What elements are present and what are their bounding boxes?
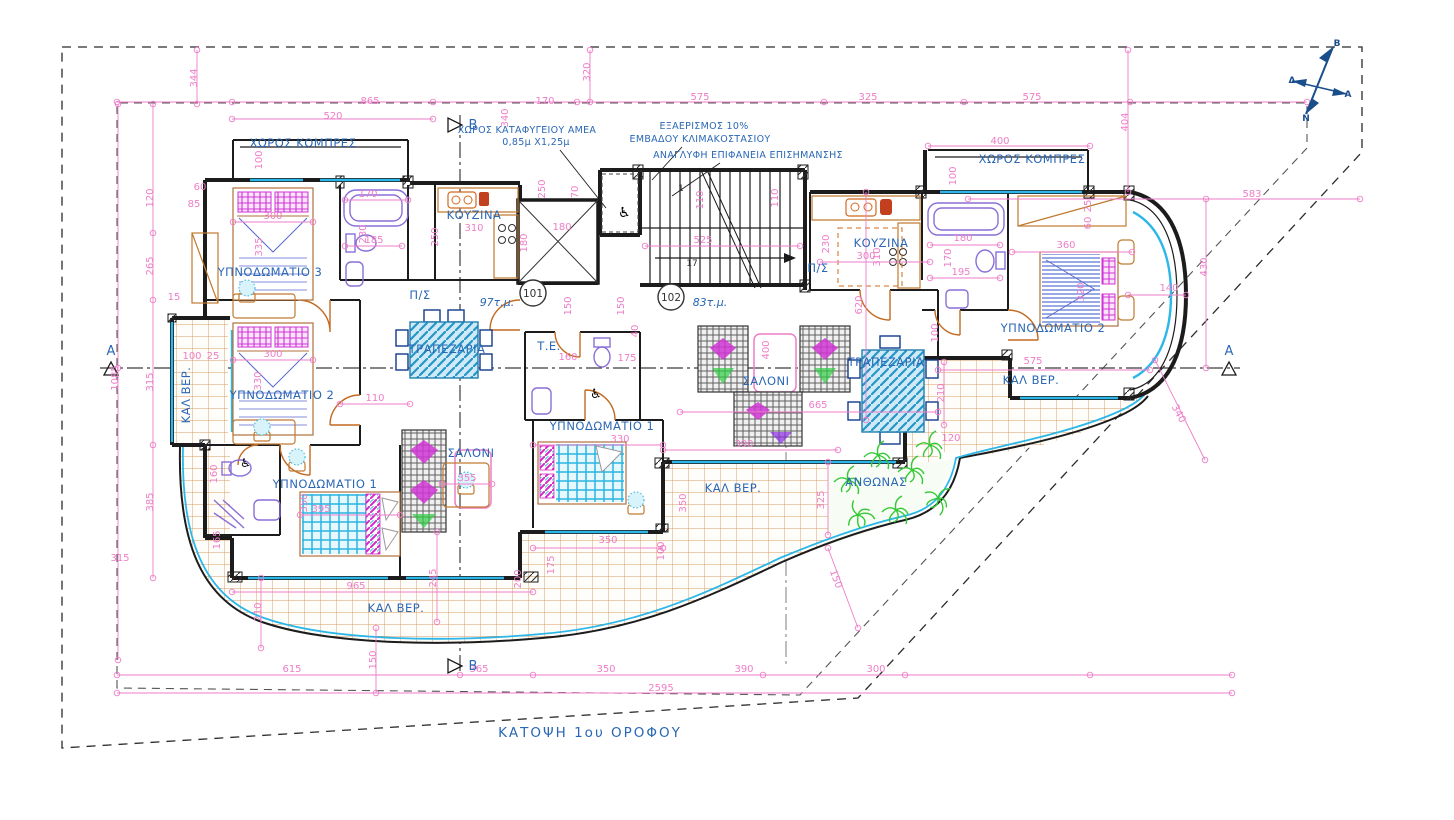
annotation-label: ΑΝΑΓΛΥΦΗ ΕΠΙΦΑΝΕΙΑ ΕΠΙΣΗΜΑΝΣΗΣ xyxy=(653,150,843,161)
dimension-label: 300 xyxy=(866,664,885,675)
dimension-label: 350 xyxy=(598,535,617,546)
bed-bedroom1-102 xyxy=(538,442,626,504)
dimension-label: 185 xyxy=(364,235,383,246)
dimension-label: 180 xyxy=(519,233,530,252)
dimension-label: 15 xyxy=(168,292,181,303)
dimension-label: 100 xyxy=(254,150,265,169)
dimension-label: 165 xyxy=(212,530,223,549)
room-label: ΚΑΛ ΒΕΡ. xyxy=(705,481,762,495)
room-label: ΣΑΛΟΝΙ xyxy=(742,374,789,388)
compass-letter: Δ xyxy=(1289,76,1296,86)
dimension-label: 575 xyxy=(1023,356,1042,367)
compass-letter: N xyxy=(1302,114,1310,124)
apartment-101-number: 101 xyxy=(523,288,543,300)
section-marker-letter: B xyxy=(469,659,478,674)
armchair-102-a xyxy=(698,326,748,392)
dimension-label: 230 xyxy=(821,234,832,253)
dimension-label: 385 xyxy=(145,492,156,511)
dimension-label: 620 xyxy=(854,295,865,314)
dimension-label: 300 xyxy=(263,211,282,222)
dimension-label: 400 xyxy=(990,136,1009,147)
dimension-label: 615 xyxy=(282,664,301,675)
dimension-label: 180 xyxy=(953,233,972,244)
dimension-label: 350 xyxy=(596,664,615,675)
dimension-label: 40 xyxy=(630,325,641,338)
dimension-label: 210 xyxy=(936,383,947,402)
dimension-label: 575 xyxy=(690,92,709,103)
compass-letter: B xyxy=(1334,39,1341,49)
room-label: ΧΩΡΟΣ ΚΟΜΠΡΕΣ xyxy=(250,136,357,150)
dimension-label: 100 xyxy=(948,166,959,185)
dimension-label: 665 xyxy=(808,400,827,411)
dimension-label: 865 xyxy=(360,96,379,107)
dimension-label: 320 xyxy=(582,62,593,81)
stair-number: 17 xyxy=(686,259,697,269)
dimension-label: 160 xyxy=(558,352,577,363)
annotation-label: 0,85μ Χ1,25μ xyxy=(502,137,570,148)
dimension-label: 245 xyxy=(428,568,439,587)
apartment-101-area: 97τ.μ. xyxy=(480,296,515,309)
section-marker-letter: B xyxy=(469,118,478,133)
room-label: Τ.Ε. xyxy=(536,339,561,353)
dimension-label: 390 xyxy=(734,664,753,675)
dimension-label: 150 xyxy=(827,568,844,590)
room-label: ΧΩΡΟΣ ΚΟΜΠΡΕΣ xyxy=(979,152,1086,166)
dimension-label: 325 xyxy=(816,490,827,509)
annotation-label: ΕΜΒΑΔΟΥ ΚΛΙΜΑΚΟΣΤΑΣΙΟΥ xyxy=(630,134,771,145)
dimension-label: 525 xyxy=(693,235,712,246)
dimension-label: 140 xyxy=(1159,283,1178,294)
room-label: ΚΑΛ ΒΕΡ. xyxy=(179,367,193,424)
dimension-label: 160 xyxy=(209,464,220,483)
dimension-label: 60 xyxy=(1083,217,1094,230)
dimension-label: 150 xyxy=(563,296,574,315)
dimension-label: 520 xyxy=(323,111,342,122)
room-label: ΚΟΥΖΙΝΑ xyxy=(447,208,502,222)
annotation-label: ΕΞΑΕΡΙΣΜΟΣ 10% xyxy=(659,121,748,132)
dimension-label: 320 xyxy=(1076,282,1087,301)
room-label: ΚΑΛ ΒΕΡ. xyxy=(368,601,425,615)
dimension-label: 2595 xyxy=(648,683,673,694)
north-compass-icon xyxy=(1292,47,1347,114)
dining-table-102 xyxy=(848,336,938,444)
dimension-label: 100 xyxy=(930,323,941,342)
room-label: ΥΠΝΟΔΩΜΑΤΙΟ 1 xyxy=(272,477,378,491)
room-label: ΥΠΝΟΔΩΜΑΤΙΟ 2 xyxy=(1000,321,1106,335)
dimension-label: 170 xyxy=(943,248,954,267)
dimension-label: 340 xyxy=(1169,403,1188,425)
staircase: ♿ xyxy=(602,168,805,288)
armchair-102-b xyxy=(800,326,850,392)
room-label: Π/Σ xyxy=(409,288,430,302)
annotation-labels: ΧΩΡΟΣ ΚΑΤΑΦΥΓΕΙΟΥ ΑΜΕΑ0,85μ Χ1,25μΕΞΑΕΡΙ… xyxy=(458,121,843,161)
room-label: ΑΝΘΩΝΑΣ xyxy=(845,475,907,489)
dimension-label: 120 xyxy=(941,433,960,444)
dimension-label: 100 xyxy=(656,541,667,560)
room-label: ΤΡΑΠΕΖΑΡΙΑ xyxy=(408,342,486,356)
wheelchair-icon: ♿ xyxy=(618,205,631,221)
dimension-label: 300 xyxy=(263,349,282,360)
dimension-label: 360 xyxy=(1056,240,1075,251)
dimension-label: 70 xyxy=(570,186,581,199)
dimension-label: 1085 xyxy=(110,365,121,390)
section-marker-letter: A xyxy=(1225,344,1234,359)
dimension-label: 404 xyxy=(1120,112,1131,131)
dimension-label: 120 xyxy=(145,188,156,207)
dimension-label: 355 xyxy=(457,473,476,484)
dimension-label: 60 xyxy=(194,182,207,193)
dimension-label: 335 xyxy=(254,237,265,256)
dimension-label: 110 xyxy=(695,190,706,209)
dimension-label: 210 xyxy=(253,602,264,621)
dimension-label: 390 xyxy=(734,439,753,450)
dimension-label: 85 xyxy=(188,199,201,210)
apartment-102-tag: 102 83τ.μ. xyxy=(658,284,727,310)
dimension-label: 575 xyxy=(1022,92,1041,103)
sofa-salon-101 xyxy=(402,430,446,532)
dimension-label: 965 xyxy=(346,581,365,592)
dimension-label: 110 xyxy=(770,188,781,207)
dimension-label: 100 xyxy=(182,351,201,362)
room-label: ΤΡΑΠΕΖΑΡΙΑ xyxy=(847,355,925,369)
dimension-label: 265 xyxy=(145,256,156,275)
dimension-label: 325 xyxy=(858,92,877,103)
dimension-label: 150 xyxy=(368,650,379,669)
apartment-101-tag: 101 97τ.μ. xyxy=(480,280,546,309)
dimension-label: 430 xyxy=(1199,257,1210,276)
dimension-label: 200 xyxy=(513,569,524,588)
dimension-label: 350 xyxy=(678,493,689,512)
dimension-label: 315 xyxy=(110,553,129,564)
dimension-label: 170 xyxy=(535,96,554,107)
dimension-label: 195 xyxy=(951,267,970,278)
stair-number: 1 xyxy=(678,184,684,194)
dimension-label: 180 xyxy=(552,222,571,233)
floor-plan-canvas: ♿ ♿ ♿ xyxy=(0,0,1454,820)
section-marker-letter: A xyxy=(107,344,116,359)
dimension-label: 315 xyxy=(145,372,156,391)
dimension-label: 170 xyxy=(358,189,377,200)
wheelchair-icon: ♿ xyxy=(590,387,602,402)
dimension-label: 310 xyxy=(464,223,483,234)
room-label: ΣΑΛΟΝΙ xyxy=(447,446,494,460)
room-label: Π/Σ xyxy=(807,261,828,275)
dimension-label: 583 xyxy=(1242,189,1261,200)
dimension-label: 25 xyxy=(207,351,220,362)
dimension-label: 310 xyxy=(872,247,883,266)
compass-letter: A xyxy=(1345,90,1352,100)
elevator-shaft xyxy=(518,200,598,283)
dimension-label: 175 xyxy=(546,555,557,574)
wheelchair-icon: ♿ xyxy=(240,456,251,470)
room-label: ΥΠΝΟΔΩΜΑΤΙΟ 1 xyxy=(549,419,655,433)
amea-refuge-space xyxy=(602,174,638,232)
dimension-label: 110 xyxy=(365,393,384,404)
room-label: ΥΠΝΟΔΩΜΑΤΙΟ 3 xyxy=(217,265,323,279)
floor-plan-page: ♿ ♿ ♿ xyxy=(0,0,1454,820)
dimension-label: 150 xyxy=(616,296,627,315)
dimension-label: 330 xyxy=(610,434,629,445)
dimension-label: 395 xyxy=(311,504,330,515)
dimension-label: 175 xyxy=(617,353,636,364)
apartment-102-number: 102 xyxy=(661,292,681,304)
sofa-salon-102 xyxy=(734,392,802,446)
dimension-label: 250 xyxy=(430,227,441,246)
room-label: ΚΟΥΖΙΝΑ xyxy=(854,236,909,250)
bed-bedroom2-left xyxy=(233,323,313,435)
dimension-label: 25 xyxy=(1083,200,1094,213)
bed-bedroom1-left xyxy=(300,492,400,556)
dimension-label: 344 xyxy=(189,68,200,87)
room-label: ΥΠΝΟΔΩΜΑΤΙΟ 2 xyxy=(229,388,335,402)
dimension-label: 350 xyxy=(299,493,310,512)
room-label: ΚΑΛ ΒΕΡ. xyxy=(1003,373,1060,387)
dimension-label: 400 xyxy=(761,340,772,359)
drawing-title: ΚΑΤΟΨΗ 1ου ΟΡΟΦΟΥ xyxy=(498,725,682,741)
apartment-102-area: 83τ.μ. xyxy=(693,296,728,309)
dimension-label: 250 xyxy=(537,179,548,198)
annotation-label: ΧΩΡΟΣ ΚΑΤΑΦΥΓΕΙΟΥ ΑΜΕΑ xyxy=(458,125,597,136)
